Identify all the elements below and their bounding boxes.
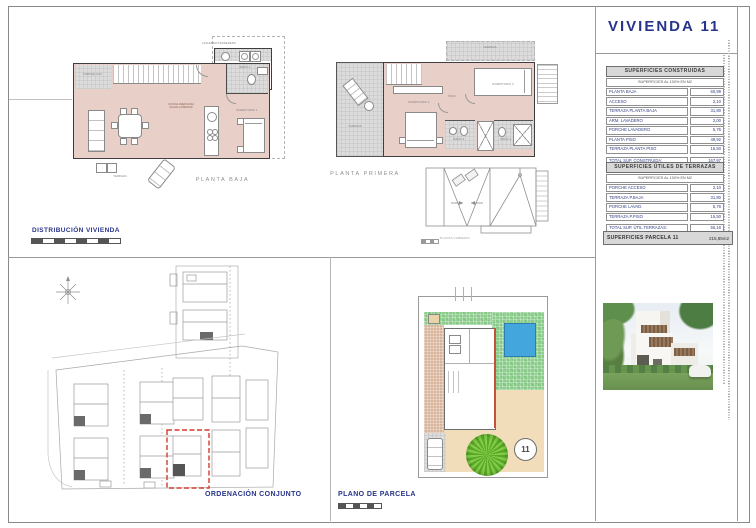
chair-icon (120, 108, 127, 115)
room-label-dormitorio1: DORMITORIO 1 (227, 110, 267, 113)
shower-icon (513, 124, 532, 146)
row-label: PORCHE LAVAD. (606, 203, 688, 212)
divider-bottom-sections (330, 257, 331, 521)
row-label: TERRAZA PLANTA PISO (606, 145, 688, 154)
planta-primera-caption: PLANTA PRIMERA (320, 171, 410, 177)
compass-icon (56, 276, 80, 304)
nightstand (436, 137, 443, 144)
row-label: TERRAZA P.BAJA (606, 193, 688, 202)
side-table-icon (364, 101, 374, 111)
chair-icon (131, 108, 138, 115)
sheet-title: VIVIENDA 11 (608, 18, 720, 35)
bush-icon (466, 434, 508, 476)
table-row: TERRAZA P.BAJA31,80 (606, 193, 724, 202)
row-label: PORCHE LAVADERO (606, 126, 688, 135)
chair-icon (131, 138, 138, 145)
row-value: 5,76 (690, 203, 724, 212)
terraza-primera (336, 62, 385, 157)
table-row: PORCHE LAVADERO5,76 (606, 126, 724, 135)
table-row: ARM. LAVADERO2,00 (606, 117, 724, 126)
row-label: ACCESO (606, 97, 688, 106)
chair-icon (142, 122, 149, 129)
parcel-number-circle: 11 (514, 438, 537, 461)
room-label-comedor: SALON-COMEDOR (153, 106, 209, 109)
fixture (449, 335, 461, 344)
porche-acceso (75, 65, 111, 89)
row-label: TERRAZA P.PISO (606, 213, 688, 222)
toilet-icon (247, 74, 256, 85)
site-plan (40, 258, 322, 498)
planta-baja-caption: PLANTA BAJA (185, 177, 260, 183)
nightstand (237, 146, 244, 153)
row-value: 5,76 (690, 126, 724, 135)
utility-line (455, 287, 456, 301)
row-label: PLANTA BAJA (606, 88, 688, 97)
legal-vertical-text (728, 40, 730, 420)
utility-line (463, 287, 464, 301)
parcel-plan: 11 (415, 293, 550, 483)
partition (445, 363, 495, 364)
outdoor-table (96, 163, 107, 173)
bed-icon (243, 118, 265, 153)
planta-cubierta-plan (423, 163, 555, 237)
table-row: TERRAZA PLANTA PISO15,50 (606, 145, 724, 154)
row-label: PLANTA PISO (606, 136, 688, 145)
wood-slat-band (649, 337, 673, 347)
table-row: ACCESO2,10 (606, 97, 724, 106)
pillow (524, 70, 525, 93)
partition (469, 329, 470, 363)
pillow (245, 123, 262, 124)
table-row: TERRAZA PLANTA BAJA31,80 (606, 107, 724, 116)
fixture (449, 345, 461, 354)
section-title-ordenacion: ORDENACIÓN CONJUNTO (205, 491, 302, 498)
room-label-lavadero: LAVADERO/TENDEDERO (188, 43, 250, 46)
car-white (689, 365, 711, 377)
row-value: 49,92 (690, 136, 724, 145)
parcela-surface-bar: SUPERFICIES PARCELA 11 215,85m2 (603, 231, 733, 245)
side-path (424, 325, 444, 433)
palm-tree (603, 319, 631, 371)
table-row: TERRAZA P.PISO15,50 (606, 213, 724, 222)
wood-slat-band (674, 348, 695, 356)
row-value: 60,89 (690, 88, 724, 97)
divider-right-column (595, 6, 596, 521)
hob-burner (212, 135, 218, 141)
room-label-dormitorio2: DORMITORIO 2 (398, 102, 440, 105)
house-stairs (448, 371, 462, 393)
table-row: PLANTA PISO49,92 (606, 136, 724, 145)
row-value: 31,80 (690, 107, 724, 116)
table-subtitle: SUPERFICIES AL 100% EN M2 (606, 174, 724, 183)
parcel-number: 11 (521, 445, 529, 454)
wardrobe-icon (477, 121, 494, 151)
roof-terrace-strip (446, 41, 535, 61)
washer-icon (239, 51, 250, 62)
row-label: PORCHE ACCESO (606, 184, 688, 193)
table-row: PLANTA BAJA60,89 (606, 88, 724, 97)
boundary-red-line (494, 328, 496, 428)
parcela-surface-value: 215,85m2 (709, 236, 729, 241)
sink-icon (221, 52, 230, 61)
room-label-terraza: TERRAZA (107, 176, 133, 179)
chair-icon (111, 122, 118, 129)
stairs (113, 65, 201, 84)
shelf (393, 86, 443, 94)
room-label-paso: PASO (442, 96, 462, 99)
table-row: PORCHE LAVAD.5,76 (606, 203, 724, 212)
row-value: 31,80 (690, 193, 724, 202)
row-value: 15,50 (690, 213, 724, 222)
scale-bar-distribucion (31, 238, 121, 244)
row-value: 2,10 (690, 97, 724, 106)
dryer-icon (250, 51, 261, 62)
room-label-terraza-sup: TERRAZA (476, 47, 504, 50)
room-label-bano1: BAÑO 1 (231, 67, 259, 70)
scale-bar-parcela (338, 503, 382, 509)
car-icon (427, 438, 443, 470)
car-icon (147, 158, 176, 189)
room-label-terraza1: TERRAZA (341, 126, 369, 129)
bed-icon (474, 68, 532, 96)
kitchen-counter (204, 106, 219, 156)
room-label-bano2: BAÑO 2 (447, 139, 471, 142)
drawing-sheet: LAVADERO/TENDEDERO PORCHE ACC. BAÑO 1 (0, 0, 756, 528)
row-value: 15,50 (690, 145, 724, 154)
pillow (407, 140, 434, 141)
outdoor-chair (107, 163, 117, 173)
section-title-distribucion: DISTRIBUCIÓN VIVIENDA (32, 227, 120, 234)
bano-2 (445, 120, 475, 149)
entry-pad (428, 314, 440, 324)
utility-line (471, 287, 472, 301)
row-value: 2,10 (690, 184, 724, 193)
row-label: TERRAZA PLANTA BAJA (606, 107, 688, 116)
room-label-bano3: BAÑO 3 (495, 139, 517, 142)
table-title: SUPERFICIES CONSTRUIDAS (606, 66, 724, 77)
divider-under-title (595, 53, 737, 54)
toilet-icon (498, 127, 506, 137)
nightstand (399, 137, 406, 144)
row-label: ARM. LAVADERO (606, 117, 688, 126)
planta-primera-plan: TERRAZA TERRAZA DORMITORIO 2 DORMITORIO … (330, 25, 562, 165)
sofa-icon (88, 110, 105, 152)
parcela-surface-label: SUPERFICIES PARCELA 11 (607, 235, 679, 241)
tree-canopy (675, 303, 713, 333)
room-label-dormitorio3: DORMITORIO 3 (482, 84, 524, 87)
table-title: SUPERFICIES ÚTILES DE TERRAZAS (606, 162, 724, 173)
row-value: 2,00 (690, 117, 724, 126)
pool (504, 323, 536, 357)
stairs (386, 64, 422, 85)
planta-cubierta-caption: PLANTA CUBIERTA (440, 237, 482, 240)
planta-baja-plan: LAVADERO/TENDEDERO PORCHE ACC. BAÑO 1 (55, 30, 290, 188)
chair-icon (120, 138, 127, 145)
villa-render-image (603, 303, 713, 390)
room-label-porche: PORCHE ACC. (77, 74, 109, 77)
legal-strip-line (737, 6, 738, 521)
nightstand (237, 118, 244, 125)
washbasin-icon (449, 127, 457, 135)
exterior-stairs (537, 64, 558, 104)
section-title-parcela: PLANO DE PARCELA (338, 491, 416, 498)
room-label-salon: COCINA AMERICANA SALON-COMEDOR (153, 103, 209, 109)
toilet-icon (460, 126, 468, 136)
house-footprint (444, 328, 496, 430)
table-subtitle: SUPERFICIES AL 100% EN M2 (606, 78, 724, 87)
table-row: PORCHE ACCESO2,10 (606, 184, 724, 193)
table-superficies-construidas: SUPERFICIES CONSTRUIDAS SUPERFICIES AL 1… (606, 66, 724, 165)
bed-icon (405, 112, 437, 148)
kitchen-sink-icon (207, 112, 217, 122)
dining-table (118, 114, 142, 138)
table-superficies-terrazas: SUPERFICIES ÚTILES DE TERRAZAS SUPERFICI… (606, 162, 724, 233)
scale-bar-cubierta (421, 239, 439, 244)
